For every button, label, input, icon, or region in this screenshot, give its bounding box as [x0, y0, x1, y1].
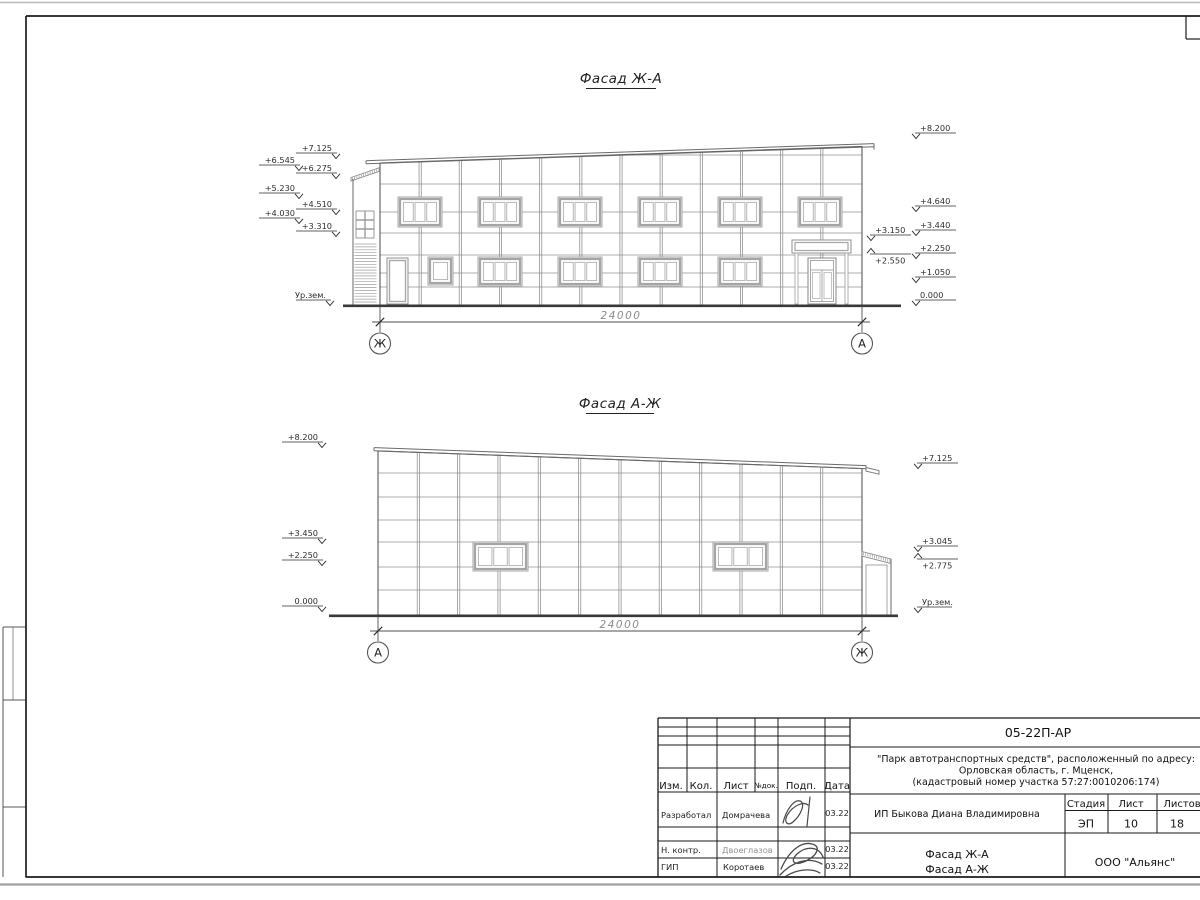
sheets-header: Листов — [1163, 799, 1200, 810]
project-line2: Орловская область, г. Мценск, — [959, 766, 1113, 777]
svg-text:+6.275: +6.275 — [302, 163, 332, 173]
svg-text:+7.125: +7.125 — [922, 453, 952, 463]
doc-number: 05-22П-АР — [1005, 725, 1072, 740]
drawing-sheet: +7.125+6.545+6.275+5.230+4.510+4.030+3.3… — [0, 0, 1200, 900]
elevation-mark: +8.200 — [912, 123, 956, 139]
facade-1-axis-right: А — [858, 337, 866, 351]
svg-text:+2.250: +2.250 — [920, 243, 950, 253]
role-gip: ГИП — [661, 862, 679, 872]
elevation-mark: +1.050 — [912, 267, 956, 283]
svg-text:+8.200: +8.200 — [920, 123, 950, 133]
svg-text:+3.150: +3.150 — [875, 225, 905, 235]
gip-name: Коротаев — [723, 862, 764, 872]
elevation-mark: +4.640 — [912, 196, 956, 212]
svg-text:+4.030: +4.030 — [265, 208, 295, 218]
elevation-mark: +3.440 — [912, 220, 956, 236]
elevation-mark: +3.045 — [914, 536, 958, 552]
stage-value: ЭП — [1078, 818, 1094, 831]
svg-text:+8.200: +8.200 — [288, 432, 318, 442]
sheet-title-line2: Фасад А-Ж — [925, 863, 989, 876]
elevation-mark: Ур.зем. — [295, 290, 334, 306]
sheets-total: 18 — [1170, 818, 1184, 831]
col-doc: №док. — [754, 781, 778, 790]
elevation-mark: +8.200 — [282, 432, 326, 448]
svg-text:Ур.зем.: Ур.зем. — [295, 290, 326, 300]
drawing-canvas: +7.125+6.545+6.275+5.230+4.510+4.030+3.3… — [0, 0, 1200, 900]
project-line3: (кадастровый номер участка 57:27:0010206… — [913, 777, 1160, 788]
svg-text:0.000: 0.000 — [295, 596, 318, 606]
col-list: Лист — [723, 781, 749, 792]
role-developer: Разработал — [661, 810, 711, 820]
facade-1-axis-left: Ж — [374, 337, 387, 351]
svg-text:+1.050: +1.050 — [920, 267, 950, 277]
facade-2-axis-left: А — [374, 646, 382, 660]
facade-2-title: Фасад А-Ж — [579, 396, 661, 412]
sheet-number: 10 — [1124, 818, 1138, 831]
elevation-mark: +7.125 — [296, 143, 340, 159]
elevation-mark: +7.125 — [914, 453, 958, 469]
developer-date: 03.22 — [825, 808, 849, 818]
sheet-header: Лист — [1118, 799, 1144, 810]
facade-1-dimension: 24000 — [601, 310, 642, 322]
facade-2-dimension: 24000 — [600, 619, 641, 631]
svg-text:+3.310: +3.310 — [302, 221, 332, 231]
facade-1-title: Фасад Ж-А — [580, 71, 662, 87]
svg-text:+2.250: +2.250 — [288, 550, 318, 560]
client-name: ИП Быкова Диана Владимировна — [874, 809, 1040, 820]
svg-text:+6.545: +6.545 — [265, 155, 295, 165]
elevation-mark: +3.310 — [296, 221, 340, 237]
svg-text:+3.045: +3.045 — [922, 536, 952, 546]
elevation-mark: 0.000 — [912, 290, 956, 306]
stage-header: Стадия — [1067, 799, 1105, 810]
elevation-mark: +6.275 — [296, 163, 340, 179]
ncontrol-name: Двоеглазов — [722, 845, 773, 855]
entrance-door — [808, 258, 836, 304]
elevation-mark: +3.150 — [867, 225, 911, 241]
svg-text:+4.640: +4.640 — [920, 196, 950, 206]
elevation-mark: +2.250 — [282, 550, 326, 566]
sheet-title-line1: Фасад Ж-А — [925, 848, 989, 861]
elevation-mark: +4.510 — [296, 199, 340, 215]
svg-text:+5.230: +5.230 — [265, 183, 295, 193]
project-line1: "Парк автотранспортных средств", располо… — [877, 754, 1195, 765]
col-izm: Изм. — [659, 781, 683, 792]
elevation-mark: +2.550 — [867, 248, 911, 265]
organization-name: ООО "Альянс" — [1095, 856, 1176, 869]
svg-text:+4.510: +4.510 — [302, 199, 332, 209]
elevation-mark: +2.775 — [914, 553, 958, 570]
svg-text:Ур.зем.: Ур.зем. — [922, 597, 953, 607]
approver-signature — [780, 843, 823, 876]
elevation-mark: Ур.зем. — [914, 597, 953, 613]
svg-text:+2.775: +2.775 — [922, 561, 952, 571]
elevation-mark: +6.545 — [259, 155, 303, 171]
elevation-mark: +3.450 — [282, 528, 326, 544]
elevation-mark: +2.250 — [912, 243, 956, 259]
svg-text:+7.125: +7.125 — [302, 143, 332, 153]
ncontrol-date: 03.22 — [825, 844, 849, 854]
stair-tower — [351, 168, 380, 306]
col-kol: Кол. — [690, 781, 713, 792]
title-block-texts: 05-22П-АР "Парк автотранспортных средств… — [659, 725, 1200, 876]
svg-text:0.000: 0.000 — [920, 290, 943, 300]
svg-text:+3.450: +3.450 — [288, 528, 318, 538]
side-exit-structure — [862, 552, 891, 616]
elevation-mark: +4.030 — [259, 208, 303, 224]
facade-2-axis-right: Ж — [856, 646, 869, 660]
gip-date: 03.22 — [825, 861, 849, 871]
sheet-frame — [26, 16, 1200, 878]
developer-signature — [783, 797, 810, 826]
role-ncontrol: Н. контр. — [661, 845, 701, 855]
col-data: Дата — [824, 781, 850, 792]
developer-name: Домрачева — [722, 810, 770, 820]
left-margin-table — [3, 627, 26, 877]
svg-text:+2.550: +2.550 — [875, 256, 905, 266]
elevation-mark: 0.000 — [282, 596, 326, 612]
col-podp: Подп. — [786, 781, 816, 792]
elevation-mark: +5.230 — [259, 183, 303, 199]
svg-text:+3.440: +3.440 — [920, 220, 950, 230]
